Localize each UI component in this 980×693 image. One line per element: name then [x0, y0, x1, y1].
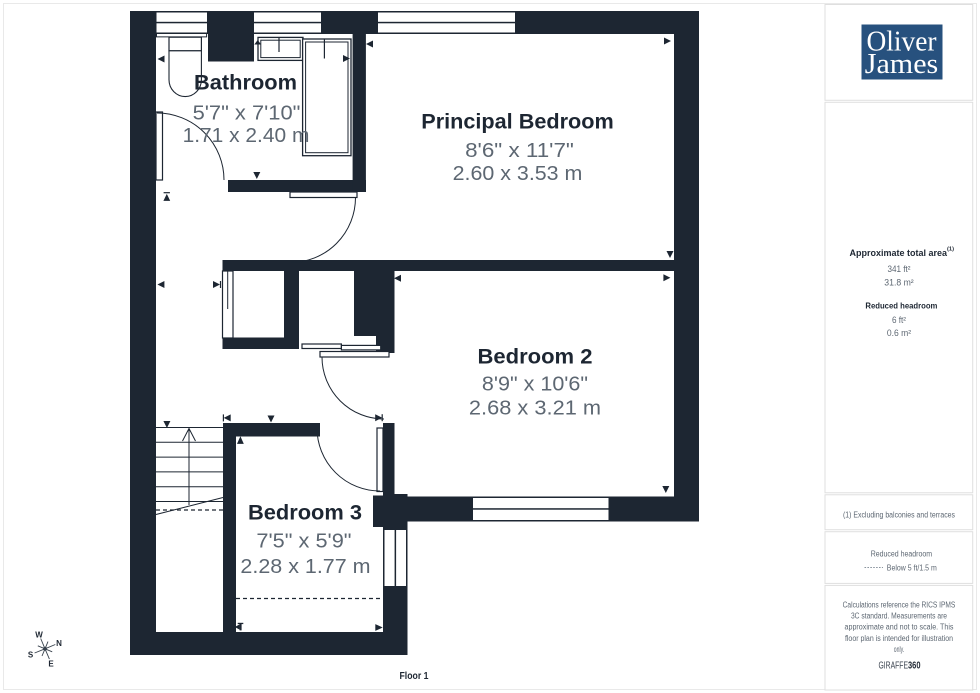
- svg-text:2.28 x 1.77 m: 2.28 x 1.77 m: [240, 556, 370, 578]
- svg-text:31.8 m²: 31.8 m²: [884, 277, 913, 287]
- svg-text:N: N: [56, 639, 62, 648]
- svg-text:approximate and not to scale.: approximate and not to scale. This: [845, 623, 954, 632]
- svg-text:0.6 m²: 0.6 m²: [887, 328, 911, 338]
- svg-text:Reduced headroom: Reduced headroom: [865, 301, 937, 311]
- svg-text:2.68 x 3.21 m: 2.68 x 3.21 m: [469, 397, 601, 419]
- svg-text:360: 360: [908, 661, 921, 672]
- svg-text:(1) Excluding balconies and te: (1) Excluding balconies and terraces: [843, 510, 955, 519]
- svg-text:E: E: [48, 659, 54, 668]
- svg-text:Bedroom 3: Bedroom 3: [248, 502, 362, 525]
- svg-text:Bedroom 2: Bedroom 2: [478, 346, 593, 369]
- svg-text:3C standard. Measurements are: 3C standard. Measurements are: [851, 612, 947, 621]
- svg-text:Approximate total area: Approximate total area: [850, 248, 948, 259]
- svg-text:341 ft²: 341 ft²: [888, 264, 911, 274]
- svg-text:only.: only.: [894, 645, 904, 654]
- svg-text:Bathroom: Bathroom: [194, 72, 297, 95]
- svg-text:S: S: [28, 651, 34, 660]
- svg-text:1.71 x 2.40 m: 1.71 x 2.40 m: [183, 125, 310, 147]
- svg-text:Principal Bedroom: Principal Bedroom: [421, 111, 614, 134]
- svg-text:6 ft²: 6 ft²: [892, 315, 906, 325]
- svg-text:5'7" x 7'10": 5'7" x 7'10": [193, 102, 301, 124]
- svg-text:James: James: [865, 49, 939, 80]
- svg-text:(1): (1): [947, 247, 954, 253]
- svg-text:W: W: [35, 631, 43, 640]
- svg-text:GIRAFFE: GIRAFFE: [879, 661, 909, 672]
- svg-text:8'9" x 10'6": 8'9" x 10'6": [482, 373, 588, 395]
- svg-text:7'5" x 5'9": 7'5" x 5'9": [256, 531, 351, 553]
- svg-text:2.60 x 3.53 m: 2.60 x 3.53 m: [453, 163, 583, 185]
- svg-text:Below 5 ft/1.5 m: Below 5 ft/1.5 m: [887, 563, 937, 572]
- svg-text:Floor 1: Floor 1: [400, 670, 429, 682]
- svg-text:floor plan is intended for ill: floor plan is intended for illustration: [845, 634, 953, 643]
- svg-text:Calculations reference the RIC: Calculations reference the RICS IPMS: [843, 601, 956, 610]
- svg-text:Reduced headroom: Reduced headroom: [871, 549, 932, 558]
- svg-text:8'6" x 11'7": 8'6" x 11'7": [465, 140, 574, 162]
